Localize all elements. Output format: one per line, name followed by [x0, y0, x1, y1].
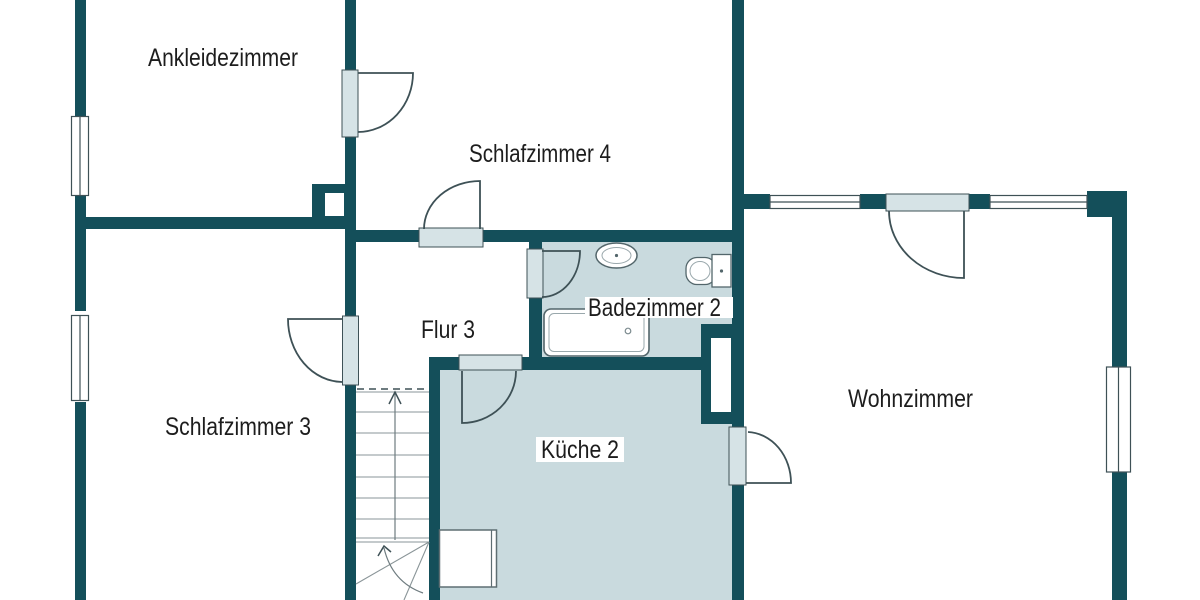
svg-text:Küche 2: Küche 2 — [541, 436, 619, 464]
svg-text:Wohnzimmer: Wohnzimmer — [848, 385, 973, 413]
svg-text:Ankleidezimmer: Ankleidezimmer — [148, 44, 298, 72]
svg-text:Schlafzimmer 4: Schlafzimmer 4 — [469, 140, 611, 168]
svg-text:Flur 3: Flur 3 — [421, 316, 475, 344]
svg-text:Badezimmer 2: Badezimmer 2 — [588, 294, 721, 322]
svg-text:Schlafzimmer 3: Schlafzimmer 3 — [165, 413, 311, 441]
